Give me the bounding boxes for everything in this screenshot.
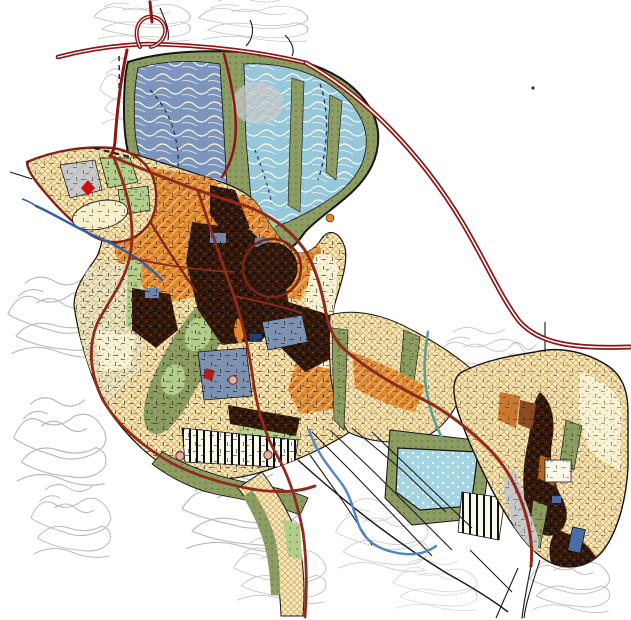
zoning-map-svg xyxy=(0,0,631,620)
motorway-stub xyxy=(150,2,152,22)
head-gray-contour-patch xyxy=(232,82,284,124)
junction-dot-1 xyxy=(229,376,237,384)
junction-dot-2 xyxy=(264,451,272,459)
junction-dot-3 xyxy=(176,452,184,460)
head-orange-disc2 xyxy=(326,214,334,222)
navy-bit-se xyxy=(552,496,561,503)
map-canvas[interactable] xyxy=(0,0,631,620)
isolated-dot-ne xyxy=(531,86,534,89)
old-town-core xyxy=(247,243,297,293)
